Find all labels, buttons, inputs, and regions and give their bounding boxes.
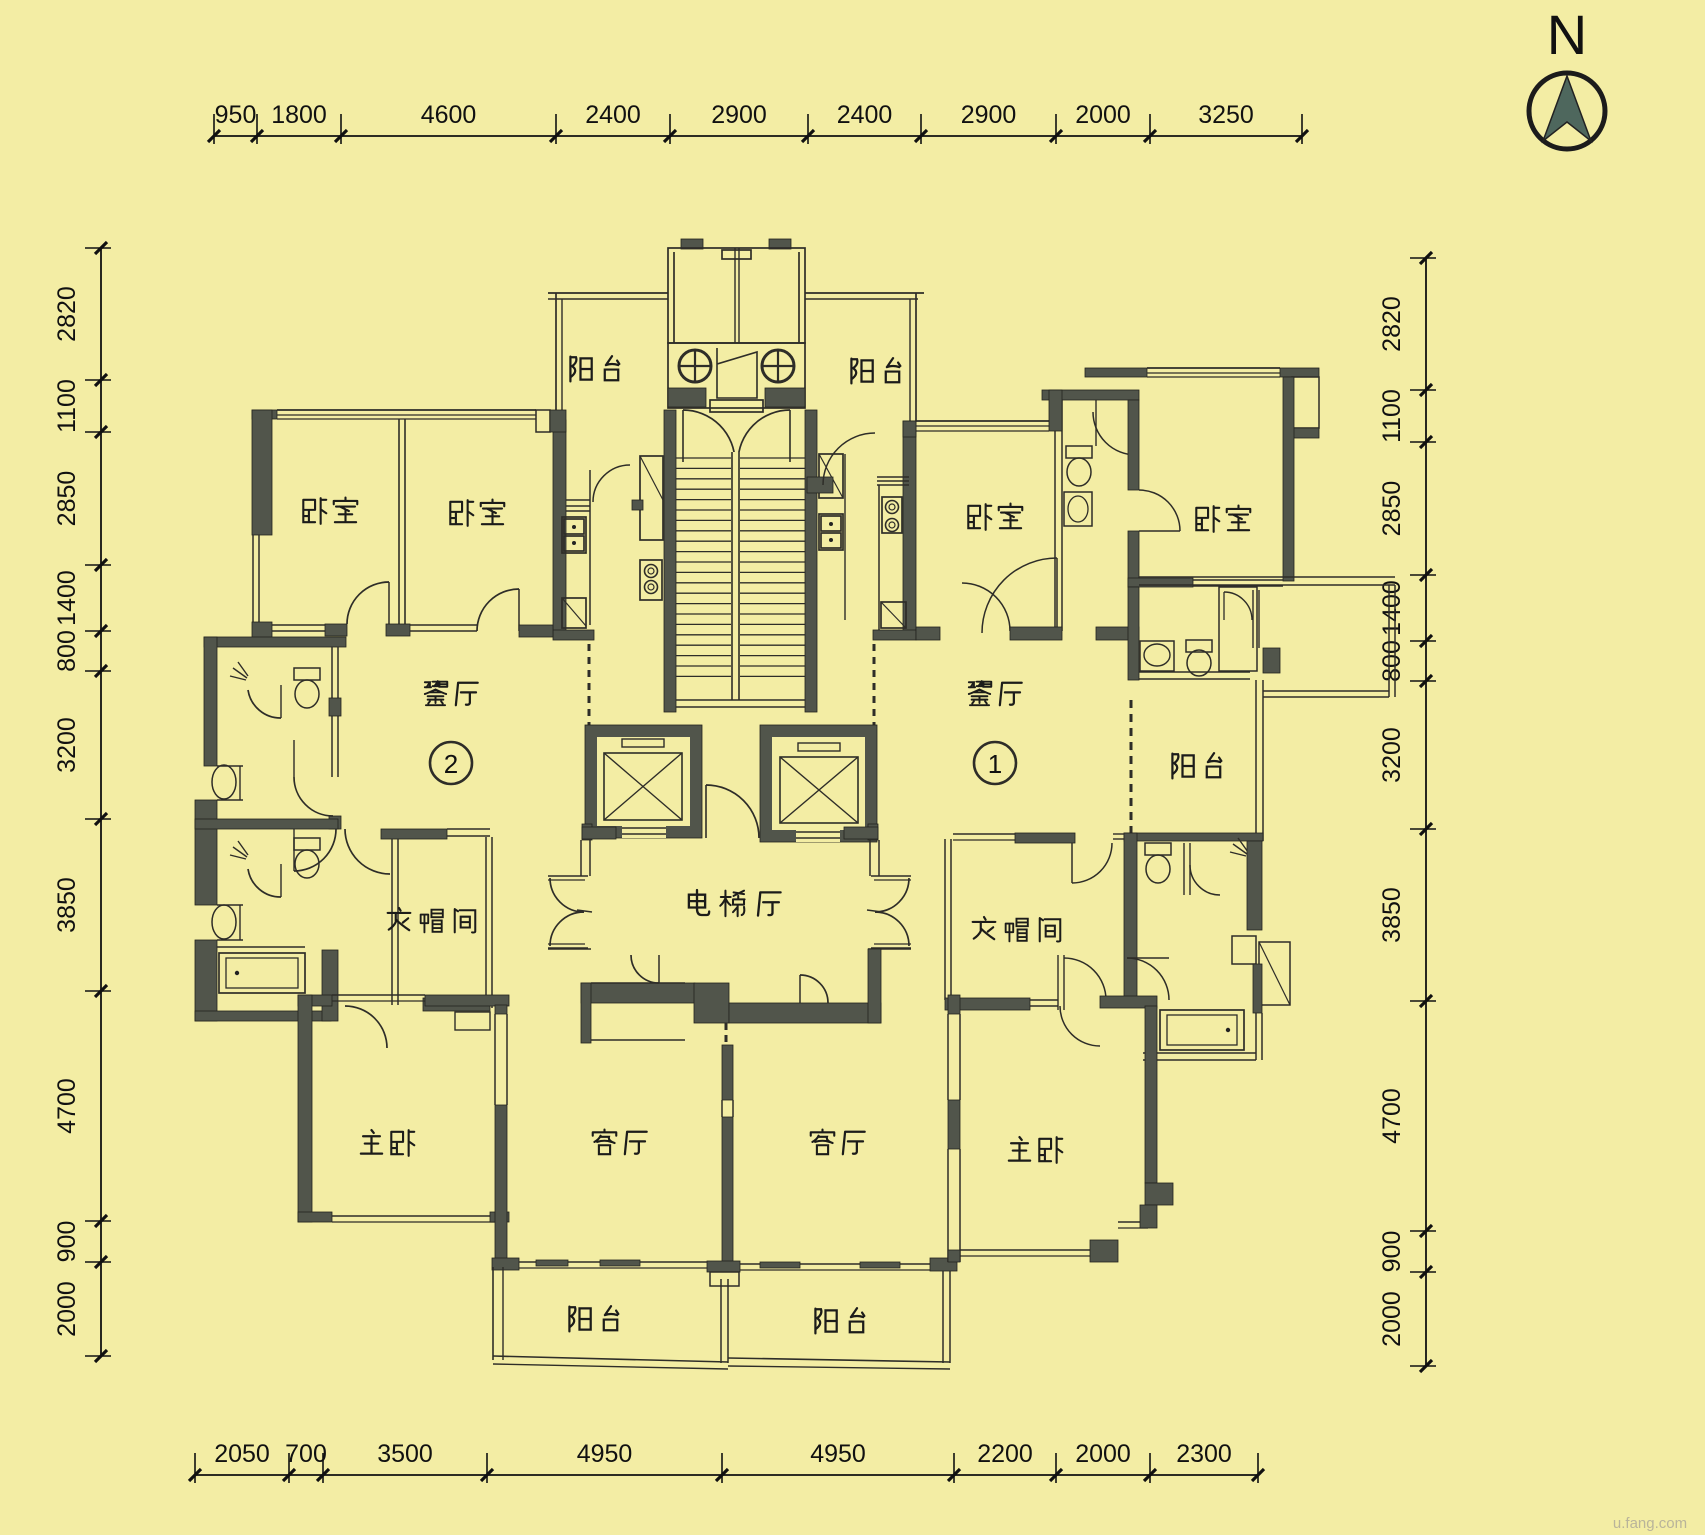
svg-text:2400: 2400 — [837, 101, 893, 129]
svg-text:3850: 3850 — [1378, 887, 1406, 943]
svg-text:2000: 2000 — [1075, 1440, 1131, 1468]
svg-text:1400: 1400 — [53, 570, 81, 626]
svg-text:2000: 2000 — [1378, 1291, 1406, 1347]
svg-text:800: 800 — [53, 630, 81, 672]
svg-text:1400: 1400 — [1378, 580, 1406, 636]
svg-text:4700: 4700 — [53, 1078, 81, 1134]
svg-text:4600: 4600 — [421, 101, 477, 129]
svg-text:4950: 4950 — [810, 1440, 866, 1468]
svg-text:4700: 4700 — [1378, 1088, 1406, 1144]
svg-text:1: 1 — [988, 749, 1002, 779]
svg-text:2200: 2200 — [977, 1440, 1033, 1468]
svg-text:2850: 2850 — [1378, 481, 1406, 537]
svg-text:3200: 3200 — [53, 717, 81, 773]
svg-text:1100: 1100 — [53, 379, 81, 433]
svg-text:1800: 1800 — [271, 101, 327, 129]
svg-text:2: 2 — [444, 749, 458, 779]
svg-text:2820: 2820 — [53, 286, 81, 342]
svg-text:3500: 3500 — [377, 1440, 433, 1468]
svg-text:2000: 2000 — [53, 1281, 81, 1337]
svg-text:4950: 4950 — [577, 1440, 633, 1468]
svg-text:3250: 3250 — [1198, 101, 1254, 129]
svg-text:2900: 2900 — [961, 101, 1017, 129]
svg-text:u.fang.com: u.fang.com — [1613, 1515, 1687, 1532]
svg-text:2050: 2050 — [214, 1440, 270, 1468]
svg-text:900: 900 — [53, 1221, 81, 1263]
svg-text:2000: 2000 — [1075, 101, 1131, 129]
svg-text:2300: 2300 — [1176, 1440, 1232, 1468]
svg-text:2400: 2400 — [585, 101, 641, 129]
svg-text:800: 800 — [1378, 640, 1406, 682]
svg-text:2850: 2850 — [53, 471, 81, 527]
svg-text:900: 900 — [1378, 1231, 1406, 1273]
svg-text:3200: 3200 — [1378, 727, 1406, 783]
svg-text:3850: 3850 — [53, 877, 81, 933]
svg-text:2900: 2900 — [711, 101, 767, 129]
svg-text:2820: 2820 — [1378, 296, 1406, 352]
svg-text:1100: 1100 — [1378, 389, 1406, 443]
svg-text:N: N — [1547, 3, 1587, 66]
svg-text:700: 700 — [285, 1440, 327, 1468]
svg-text:950: 950 — [215, 101, 257, 129]
